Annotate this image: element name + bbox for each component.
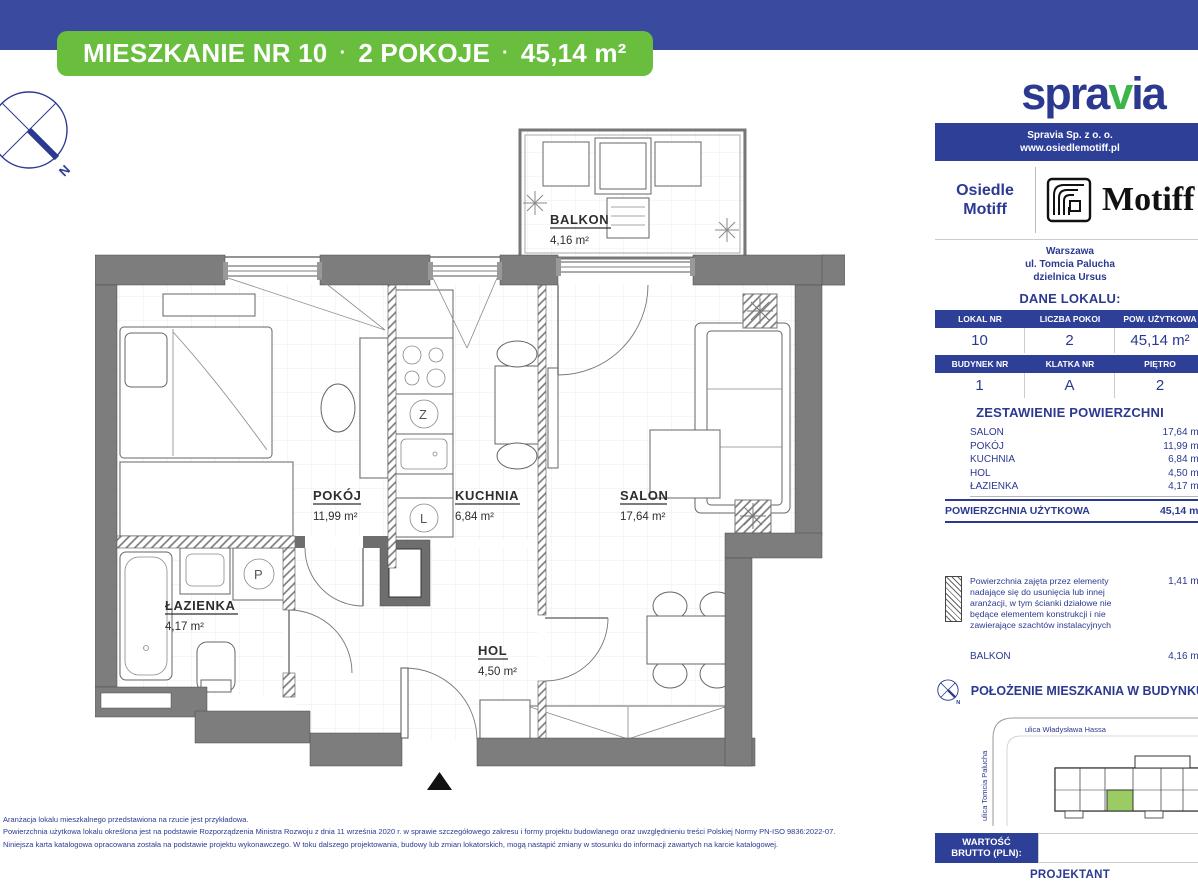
rooms-count: 2 POKOJE <box>358 38 490 69</box>
address-city: Warszawa <box>935 245 1198 258</box>
apartment-number: MIESZKANIE NR 10 <box>83 38 327 69</box>
company-bar: Spravia Sp. z o. o. www.osiedlemotiff.pl <box>935 123 1198 161</box>
desk <box>360 338 388 478</box>
room-area: 4,50 m² <box>478 666 517 678</box>
removable-elements-note: Powierzchnia zajęta przez elementy nadaj… <box>935 576 1198 631</box>
pillow <box>125 333 167 387</box>
table-value-row: 10 2 45,14 m² <box>935 328 1198 353</box>
cell-value: 10 <box>935 328 1025 353</box>
apartment-title-badge: MIESZKANIE NR 10 · 2 POKOJE · 45,14 m² <box>57 31 653 76</box>
chair <box>321 384 355 432</box>
bathroom-sink <box>180 548 230 594</box>
table-value-row: 1 A 2 <box>935 373 1198 398</box>
area-row: SALON 17,64 m² <box>970 426 1198 440</box>
dane-lokalu-title: DANE LOKALU: <box>935 291 1198 306</box>
total-area-label: POWIERZCHNIA UŻYTKOWA <box>945 505 1090 517</box>
room-area: 6,84 m² <box>455 511 494 523</box>
table-header-row: BUDYNEK NR KLATKA NR PIĘTRO <box>935 355 1198 373</box>
col-header: POW. UŻYTKOWA <box>1115 314 1198 324</box>
area-value: 4,50 m² <box>1168 468 1198 479</box>
address-street: ul. Tomcia Palucha <box>935 258 1198 271</box>
cell-value: 45,14 m² <box>1115 328 1198 353</box>
area-value: 6,84 m² <box>1168 454 1198 465</box>
highlighted-unit <box>1107 790 1133 811</box>
chair <box>497 443 537 469</box>
projektant-heading: PROJEKTANT <box>935 869 1198 881</box>
total-area-value: 45,14 m² <box>1160 505 1198 517</box>
estate-name: Osiedle Motiff <box>935 167 1036 233</box>
area-label: SALON <box>970 427 1004 438</box>
drying-rack <box>395 474 453 498</box>
bathtub <box>120 552 172 680</box>
cell-value: 2 <box>1025 328 1115 353</box>
building-footprint <box>1055 756 1198 818</box>
kitchen-table <box>495 366 543 444</box>
disclaimer: Aranżacja lokalu mieszkalnego przedstawi… <box>3 814 948 851</box>
area-label: KUCHNIA <box>970 454 1015 465</box>
motiff-logo-text: Motiff <box>1102 181 1195 219</box>
room-label: SALON <box>620 488 669 503</box>
disclaimer-line: Powierzchnia użytkowa lokalu określona j… <box>3 826 948 838</box>
balcony-label: BALKON <box>550 212 609 227</box>
unit-data-table: LOKAL NR LICZBA POKOI POW. UŻYTKOWA 10 2… <box>935 310 1198 398</box>
street-label-horizontal: ulica Władysława Hassa <box>1025 725 1107 734</box>
col-header: PIĘTRO <box>1115 359 1198 369</box>
logo-v: v <box>1108 68 1131 119</box>
balcony-area-row: BALKON 4,16 m² <box>935 651 1198 662</box>
motiff-logo-icon <box>1046 177 1092 223</box>
divider <box>935 239 1198 240</box>
area-row: KUCHNIA 6,84 m² <box>970 453 1198 467</box>
table-header-row: LOKAL NR LICZBA POKOI POW. UŻYTKOWA <box>935 310 1198 328</box>
compass-north-label: N <box>56 162 73 179</box>
room-label: ŁAZIENKA <box>165 598 236 613</box>
separator-dot: · <box>502 31 509 76</box>
balcony: BALKON 4,16 m² <box>520 130 745 258</box>
divider <box>970 496 1198 497</box>
room-label: HOL <box>478 643 507 658</box>
spravia-logo: spravia <box>935 68 1198 120</box>
cell-value: 2 <box>1115 373 1198 398</box>
balcony-row-label: BALKON <box>970 651 1011 662</box>
balcony-chair <box>655 142 701 186</box>
disclaimer-line: Aranżacja lokalu mieszkalnego przedstawi… <box>3 814 948 826</box>
disclaimer-line: Niniejsza karta katalogowa opracowana zo… <box>3 839 948 851</box>
tv-stand <box>548 368 558 468</box>
compass-icon: N <box>0 86 82 186</box>
hall-furniture <box>480 700 725 740</box>
col-header: LOKAL NR <box>935 314 1025 324</box>
street-label-vertical: ulica Tomcia Palucha <box>980 749 989 820</box>
note-value: 1,41 m² <box>1168 576 1198 631</box>
apartment-area: 45,14 m² <box>521 38 627 69</box>
col-header: KLATKA NR <box>1025 359 1115 369</box>
area-label: POKÓJ <box>970 441 1004 452</box>
zestawienie-title: ZESTAWIENIE POWIERZCHNI <box>935 405 1198 420</box>
room-area: 11,99 m² <box>313 511 358 523</box>
balcony-area: 4,16 m² <box>550 235 589 247</box>
shoe-cabinet <box>530 706 725 740</box>
area-label: ŁAZIENKA <box>970 481 1018 492</box>
total-area-row: POWIERZCHNIA UŻYTKOWA 45,14 m² <box>945 499 1198 523</box>
info-panel: spravia Spravia Sp. z o. o. www.osiedlem… <box>935 68 1198 881</box>
wardrobe <box>120 462 293 536</box>
fridge-label: L <box>420 511 427 526</box>
room-label: KUCHNIA <box>455 488 519 503</box>
location-title: POŁOŻENIE MIESZKANIA W BUDYNKU <box>971 684 1198 698</box>
company-name: Spravia Sp. z o. o. <box>935 129 1198 142</box>
balcony-chair <box>543 142 589 186</box>
stove <box>395 338 453 394</box>
room-area: 17,64 m² <box>620 511 666 523</box>
company-website: www.osiedlemotiff.pl <box>935 142 1198 155</box>
logo-text: ia <box>1131 68 1165 119</box>
chair <box>497 341 537 367</box>
cell-value: A <box>1025 373 1115 398</box>
note-text: Powierzchnia zajęta przez elementy nadaj… <box>970 576 1138 631</box>
compass-small-icon: N <box>935 676 963 706</box>
area-row: POKÓJ 11,99 m² <box>970 440 1198 454</box>
hatch-swatch-icon <box>945 576 962 622</box>
kitchen-counter <box>395 290 453 338</box>
cell-value: 1 <box>935 373 1025 398</box>
col-header: LICZBA POKOI <box>1025 314 1115 324</box>
price-value-box <box>1038 833 1198 863</box>
location-header: N POŁOŻENIE MIESZKANIA W BUDYNKU <box>935 676 1198 706</box>
dishwasher-label: Z <box>419 407 427 422</box>
entrance-arrow <box>427 772 452 790</box>
dresser <box>163 294 255 316</box>
installation-shaft <box>380 540 430 606</box>
area-value: 11,99 m² <box>1163 441 1198 452</box>
logo-text: spra <box>1021 68 1108 119</box>
room-label: POKÓJ <box>313 488 362 503</box>
balcony-side-table <box>607 198 649 238</box>
building-location-map: ulica Władysława Hassa ulica Tomcia Palu… <box>935 706 1198 826</box>
price-label: WARTOŚĆ BRUTTO (PLN): <box>935 833 1038 863</box>
area-row: HOL 4,50 m² <box>970 467 1198 481</box>
col-header: BUDYNEK NR <box>935 359 1025 369</box>
floor-plan: BALKON 4,16 m² Z L <box>95 128 845 793</box>
area-value: 4,17 m² <box>1168 481 1198 492</box>
area-row: ŁAZIENKA 4,17 m² <box>970 480 1198 494</box>
balcony-row-value: 4,16 m² <box>1168 651 1198 662</box>
area-value: 17,64 m² <box>1163 427 1198 438</box>
address-district: dzielnica Ursus <box>935 271 1198 284</box>
hall-wardrobe <box>480 700 530 740</box>
separator-dot: · <box>339 31 346 76</box>
estate-logos-row: Osiedle Motiff Motiff <box>935 161 1198 239</box>
room-area: 4,17 m² <box>165 621 204 633</box>
washer-label: P <box>254 567 263 582</box>
area-label: HOL <box>970 468 991 479</box>
estate-address: Warszawa ul. Tomcia Palucha dzielnica Ur… <box>935 245 1198 284</box>
area-list: SALON 17,64 m² POKÓJ 11,99 m² KUCHNIA 6,… <box>935 426 1198 497</box>
price-row: WARTOŚĆ BRUTTO (PLN): <box>935 833 1198 863</box>
